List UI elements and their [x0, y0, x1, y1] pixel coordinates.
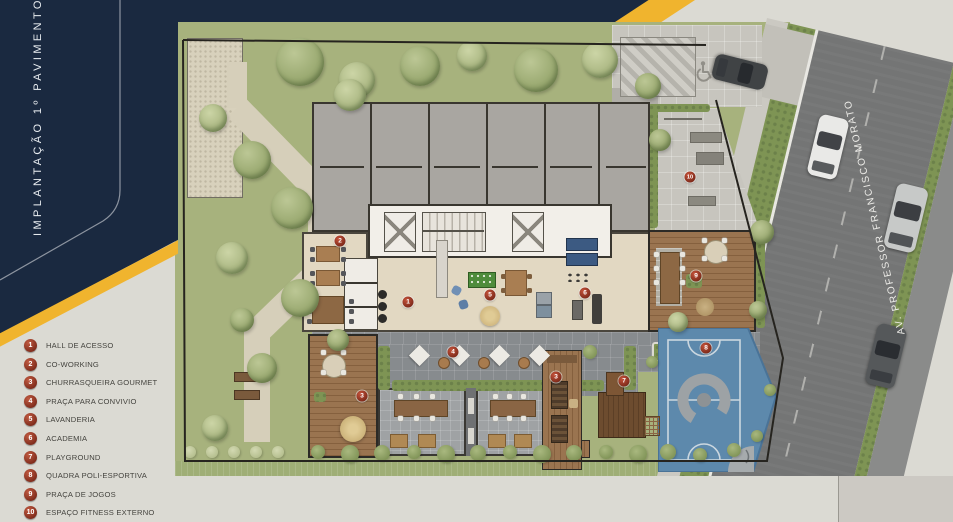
parasol — [340, 416, 366, 442]
chair — [507, 416, 512, 421]
legend-label: ACADEMIA — [46, 434, 87, 443]
chair — [702, 256, 707, 261]
bush — [693, 448, 707, 462]
legend-item-7: 7PLAYGROUND — [24, 451, 157, 464]
tree — [750, 220, 774, 244]
plan-marker-5: 5 — [485, 290, 496, 301]
bush — [184, 446, 196, 458]
plan-marker-8: 8 — [701, 343, 712, 354]
legend-badge: 1 — [24, 339, 37, 352]
lounge-table — [505, 270, 527, 296]
bush — [533, 445, 551, 463]
tree — [582, 42, 618, 78]
grill-table — [488, 434, 506, 448]
garden-bench — [234, 390, 260, 400]
legend-item-1: 1HALL DE ACESSO — [24, 339, 157, 352]
grill-table — [514, 434, 532, 448]
chair — [341, 370, 346, 375]
bbq-room-1 — [378, 388, 466, 456]
chair — [680, 252, 685, 257]
dumbbell-rack — [566, 272, 592, 282]
chair — [702, 238, 707, 243]
chair — [680, 266, 685, 271]
treadmill — [566, 253, 598, 266]
deck-lounger — [551, 415, 568, 443]
chair — [654, 280, 659, 285]
legend-badge: 8 — [24, 469, 37, 482]
tree — [199, 104, 227, 132]
chair — [414, 394, 419, 399]
chair — [349, 319, 354, 324]
chair — [349, 299, 354, 304]
grill-table — [390, 434, 408, 448]
legend-label: CHURRASQUEIRA GOURMET — [46, 378, 157, 387]
chair — [321, 350, 326, 355]
plan-marker-9: 9 — [691, 271, 702, 282]
tree — [649, 129, 671, 151]
chair — [341, 271, 346, 276]
bush — [566, 445, 582, 461]
plan-marker-3: 3 — [357, 391, 368, 402]
legend-label: PRAÇA DE JOGOS — [46, 490, 116, 499]
legend-item-2: 2CO-WORKING — [24, 358, 157, 371]
chair — [430, 416, 435, 421]
legend-label: PRAÇA PARA CONVIVIO — [46, 397, 137, 406]
tree — [216, 242, 248, 274]
chair — [501, 288, 506, 293]
tree — [202, 415, 228, 441]
plan-marker-2: 2 — [335, 236, 346, 247]
legend-badge: 9 — [24, 488, 37, 501]
tree — [635, 73, 661, 99]
chair — [398, 416, 403, 421]
bbq-long-table — [394, 400, 448, 417]
fitness-rail — [664, 118, 702, 120]
legend-badge: 2 — [24, 358, 37, 371]
gym-machine — [592, 294, 602, 324]
legend: 1HALL DE ACESSO2CO-WORKING3CHURRASQUEIRA… — [24, 339, 157, 519]
side-table — [438, 357, 450, 369]
tree — [281, 279, 319, 317]
page-title: IMPLANTAÇÃO 1º PAVIMENTO — [27, 18, 49, 236]
tree — [271, 187, 313, 229]
legend-label: QUADRA POLI-ESPORTIVA — [46, 471, 147, 480]
chair — [722, 238, 727, 243]
side-table — [518, 357, 530, 369]
legend-badge: 5 — [24, 413, 37, 426]
chair — [349, 309, 354, 314]
tree — [247, 353, 277, 383]
legend-item-6: 6ACADEMIA — [24, 432, 157, 445]
fitness-equipment — [696, 152, 724, 165]
legend-badge: 6 — [24, 432, 37, 445]
elevator — [512, 212, 544, 252]
plan-marker-1: 1 — [403, 297, 414, 308]
tree — [514, 48, 558, 92]
hedge — [378, 346, 390, 390]
chair — [493, 394, 498, 399]
site-plan-page: AV. PROFESSOR FRANCISCO MORATO IMPLANTAÇ… — [0, 0, 953, 522]
legend-label: HALL DE ACESSO — [46, 341, 114, 350]
chair — [307, 319, 312, 324]
chair — [341, 257, 346, 262]
bush — [374, 445, 390, 461]
tree — [749, 301, 767, 319]
curb-edge — [838, 476, 839, 522]
washing-machine — [536, 305, 552, 318]
chair — [310, 257, 315, 262]
pouf — [696, 298, 714, 316]
chair — [398, 394, 403, 399]
bush — [503, 445, 517, 459]
legend-label: CO-WORKING — [46, 360, 99, 369]
chair — [521, 416, 526, 421]
chair — [310, 271, 315, 276]
bush — [272, 446, 284, 458]
chair — [527, 274, 532, 279]
tree — [457, 41, 487, 71]
staircase — [422, 212, 486, 252]
laundry-counter — [436, 240, 448, 298]
plan-marker-7: 7 — [619, 376, 630, 387]
bbq-long-table — [490, 400, 536, 417]
hall-table — [378, 290, 387, 299]
plan-marker-6: 6 — [580, 288, 591, 299]
chair — [414, 416, 419, 421]
side-table — [478, 357, 490, 369]
legend-badge: 3 — [24, 376, 37, 389]
gym-bench — [572, 300, 583, 320]
hall-table — [378, 314, 387, 323]
bush — [751, 430, 763, 442]
bush — [470, 445, 486, 461]
chair — [430, 394, 435, 399]
legend-label: LAVANDERIA — [46, 415, 95, 424]
chair — [507, 394, 512, 399]
accessibility-icon — [694, 60, 714, 82]
playground-net — [644, 416, 660, 436]
chair — [521, 394, 526, 399]
bush — [660, 444, 676, 460]
legend-label: PLAYGROUND — [46, 453, 101, 462]
long-table — [660, 252, 680, 304]
games-deck — [648, 230, 756, 332]
chair — [680, 280, 685, 285]
bush — [311, 445, 325, 459]
tree — [230, 308, 254, 332]
bush — [341, 445, 359, 463]
legend-badge: 4 — [24, 395, 37, 408]
bush — [599, 445, 613, 459]
tree — [327, 329, 349, 351]
tree — [400, 46, 440, 86]
hedge — [648, 104, 710, 112]
sidewalk-corner — [839, 476, 953, 522]
legend-item-8: 8QUADRA POLI-ESPORTIVA — [24, 469, 157, 482]
bush — [646, 356, 658, 368]
chair — [341, 247, 346, 252]
bush — [437, 445, 455, 463]
games-table — [468, 272, 496, 288]
grill-table — [418, 434, 436, 448]
legend-item-9: 9PRAÇA DE JOGOS — [24, 488, 157, 501]
chair — [501, 274, 506, 279]
parasol — [480, 306, 500, 326]
bush — [629, 445, 647, 463]
bush — [727, 443, 741, 457]
chair — [654, 252, 659, 257]
legend-item-4: 4PRAÇA PARA CONVIVIO — [24, 395, 157, 408]
chair — [321, 370, 326, 375]
bush — [764, 384, 776, 396]
chair — [527, 288, 532, 293]
tree — [334, 79, 366, 111]
hall-table — [378, 302, 387, 311]
washing-machine — [536, 292, 552, 305]
plan-marker-4: 4 — [448, 347, 459, 358]
tree — [276, 38, 324, 86]
fitness-equipment — [690, 132, 722, 143]
bush — [583, 345, 597, 359]
chair — [341, 281, 346, 286]
fitness-equipment — [688, 196, 716, 206]
legend-badge: 10 — [24, 506, 37, 519]
treadmill — [566, 238, 598, 251]
plan-marker-10: 10 — [685, 172, 696, 183]
chair — [722, 256, 727, 261]
chair — [341, 350, 346, 355]
tree — [233, 141, 271, 179]
deck-lounger — [551, 381, 568, 409]
tree — [668, 312, 688, 332]
chair — [654, 266, 659, 271]
playground-structure — [598, 392, 646, 438]
legend-label: ESPAÇO FITNESS EXTERNO — [46, 508, 154, 517]
coworking-table — [316, 246, 340, 262]
bush — [250, 446, 262, 458]
elevator — [384, 212, 416, 252]
plan-marker-3: 3 — [551, 372, 562, 383]
counter — [547, 355, 577, 363]
legend-badge: 7 — [24, 451, 37, 464]
chair — [493, 416, 498, 421]
coworking-table — [316, 270, 340, 286]
bush — [228, 446, 240, 458]
side-table — [569, 399, 578, 408]
legend-item-3: 3CHURRASQUEIRA GOURMET — [24, 376, 157, 389]
legend-item-10: 10ESPAÇO FITNESS EXTERNO — [24, 506, 157, 519]
legend-item-5: 5LAVANDERIA — [24, 413, 157, 426]
chair — [310, 247, 315, 252]
bush — [206, 446, 218, 458]
bush — [407, 445, 421, 459]
